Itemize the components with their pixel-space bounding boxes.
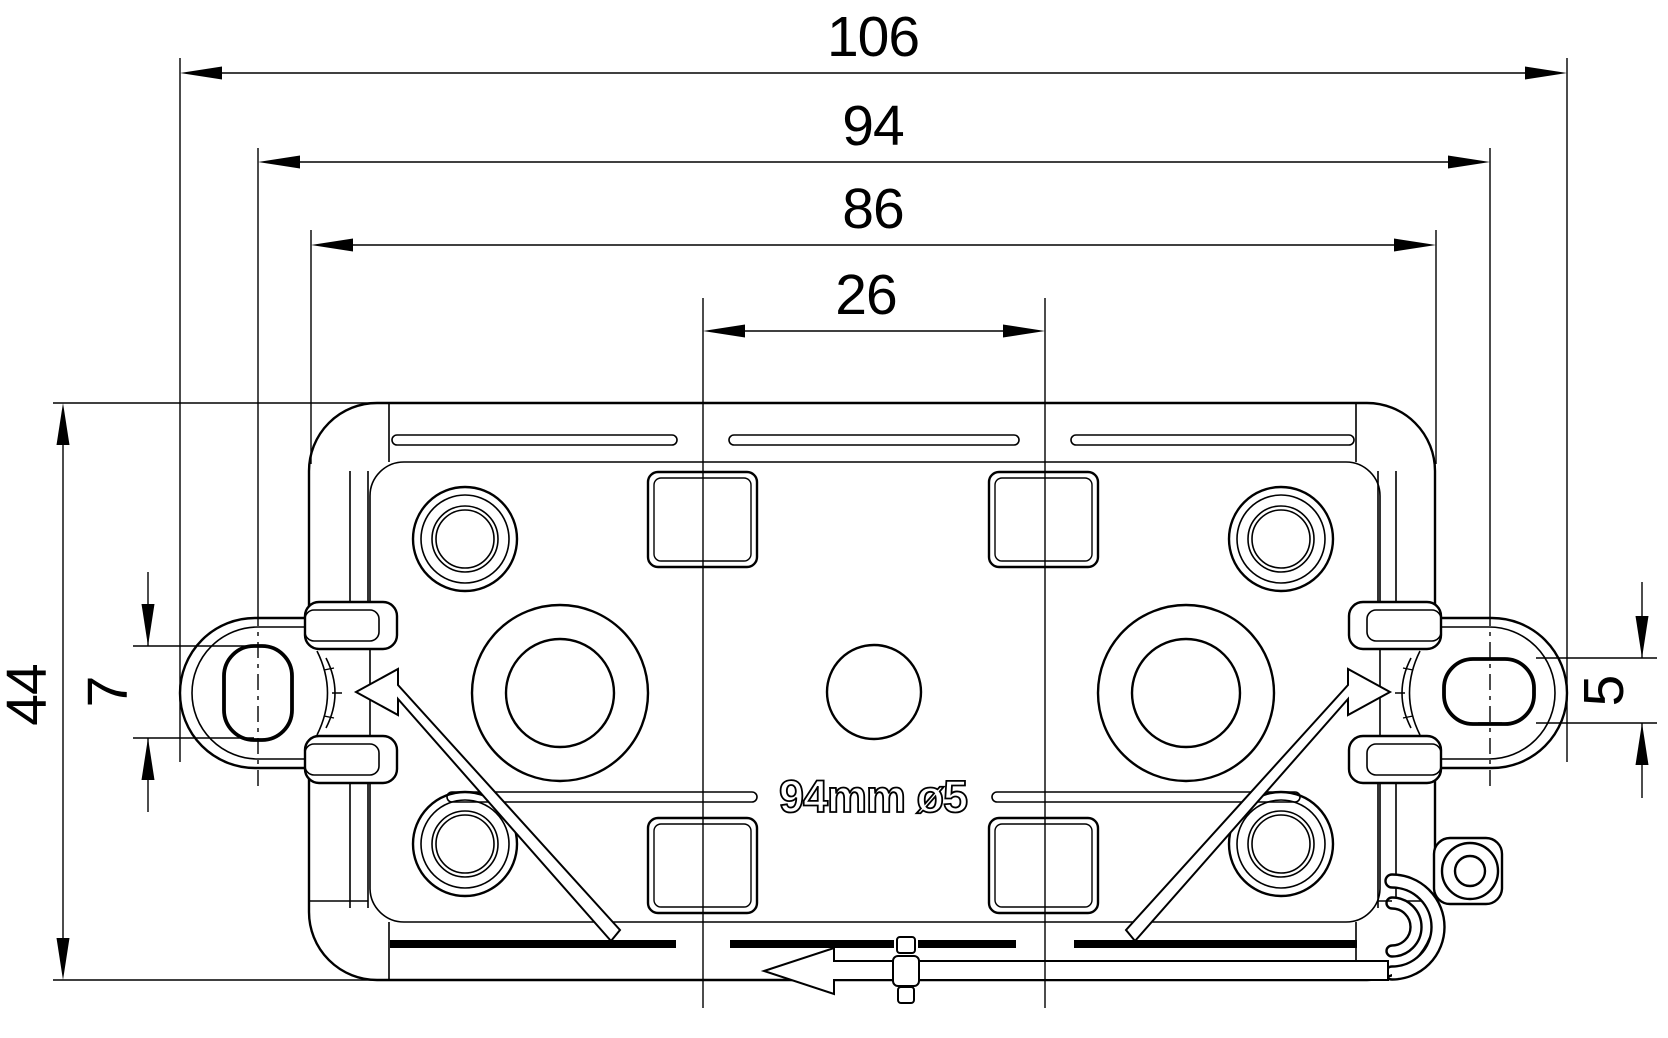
dimension-26-knockout-spacing: 26 (703, 263, 1045, 1008)
gland-left (472, 605, 648, 781)
dim-106-label: 106 (827, 5, 919, 69)
enclosure-dimension-drawing: 94mm ø5 106 94 86 26 (0, 0, 1668, 1038)
release-arrow-bottom (764, 948, 1388, 994)
knockout-top-right (989, 472, 1098, 567)
dim-26-label: 26 (835, 263, 896, 327)
dim-94-label: 94 (842, 94, 904, 158)
hook-right-bottom (1349, 736, 1441, 783)
mounting-slot-left (224, 646, 292, 740)
boss-top-right (1229, 487, 1333, 591)
snap-hooks (305, 602, 1441, 783)
hook-right-top (1349, 602, 1441, 649)
gland-right (1098, 605, 1274, 781)
center-hole (827, 645, 921, 739)
technical-drawing-canvas: 94mm ø5 106 94 86 26 (0, 0, 1668, 1038)
mounting-note-label: 94mm ø5 (779, 771, 967, 822)
boss-top-left (413, 487, 517, 591)
top-rim-slots (392, 435, 1354, 445)
dim-86-label: 86 (842, 177, 903, 241)
knockout-bottom-right (989, 818, 1098, 913)
cable-gland-openings (472, 605, 1274, 781)
mounting-slot-right (1444, 659, 1534, 724)
square-knockouts (648, 472, 1098, 913)
hook-left-top (305, 602, 397, 649)
dim-44-label: 44 (0, 664, 59, 726)
corner-screw-bosses (413, 487, 1333, 896)
molded-arrow-right (1126, 669, 1390, 941)
dim-7-label: 7 (76, 677, 140, 708)
hook-left-bottom (305, 736, 397, 783)
molded-arrow-left (356, 669, 620, 941)
bottom-seal-band (390, 940, 1357, 948)
lid-tab-right (1434, 838, 1502, 904)
dim-5-label: 5 (1572, 676, 1636, 707)
cover-latch-clip (893, 937, 919, 1003)
rim-notches (389, 403, 1356, 979)
